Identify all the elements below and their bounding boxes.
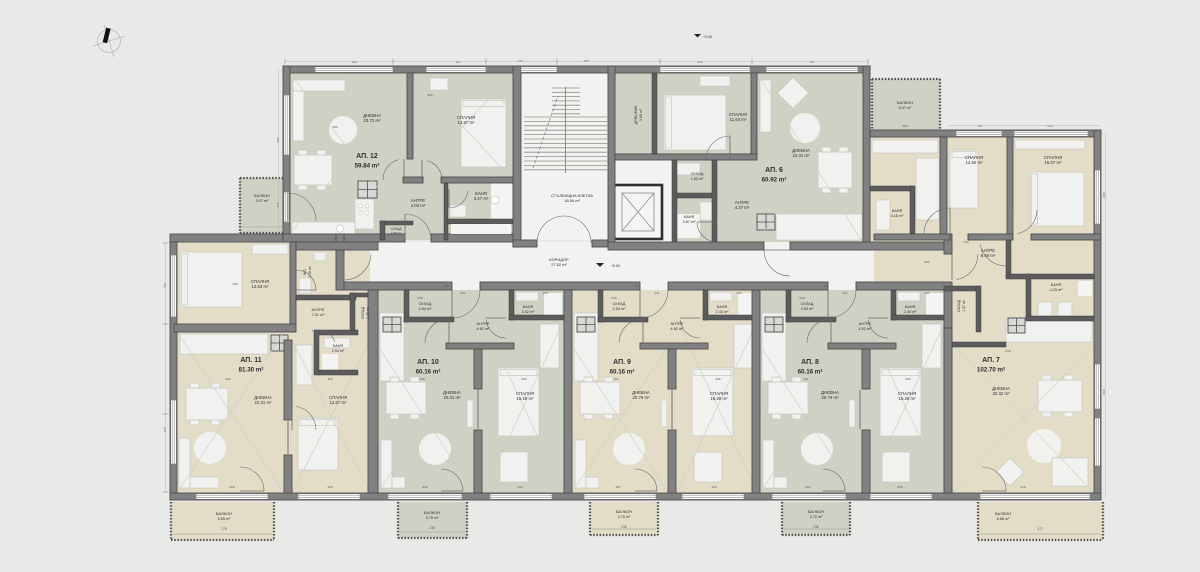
svg-text:231: 231 <box>842 291 847 295</box>
svg-text:2.40 m²: 2.40 m² <box>904 310 918 314</box>
svg-text:БАЛКОН: БАЛКОН <box>424 510 440 515</box>
svg-text:БАНЯ: БАНЯ <box>333 344 343 348</box>
svg-text:163: 163 <box>924 291 929 295</box>
svg-text:3.72 m²: 3.72 m² <box>810 515 824 519</box>
svg-text:БАНЯ: БАНЯ <box>1051 283 1062 287</box>
svg-text:+3.00: +3.00 <box>703 35 712 39</box>
svg-text:59.84 m²: 59.84 m² <box>355 163 380 170</box>
svg-text:387: 387 <box>163 282 167 287</box>
svg-text:0.75 m²: 0.75 m² <box>391 231 402 235</box>
svg-text:040: 040 <box>417 296 422 300</box>
svg-text:АП. 10: АП. 10 <box>417 359 439 366</box>
svg-text:WC: WC <box>303 269 307 275</box>
svg-text:231: 231 <box>823 284 828 288</box>
svg-text:303: 303 <box>517 485 522 489</box>
svg-text:14.60 m²: 14.60 m² <box>966 160 984 165</box>
svg-text:БАЛКОН: БАЛКОН <box>616 509 632 514</box>
svg-text:308: 308 <box>521 377 526 381</box>
svg-text:288: 288 <box>697 60 702 64</box>
svg-text:231: 231 <box>443 284 448 288</box>
svg-text:616: 616 <box>1005 349 1010 353</box>
svg-text:БАЛКОН: БАЛКОН <box>216 511 232 516</box>
svg-text:040: 040 <box>611 296 616 300</box>
svg-text:АП. 11: АП. 11 <box>240 357 261 364</box>
svg-text:616: 616 <box>1020 485 1025 489</box>
svg-text:398: 398 <box>163 427 167 432</box>
svg-text:60.16 m²: 60.16 m² <box>798 369 823 376</box>
svg-text:231: 231 <box>654 291 659 295</box>
svg-text:2.54 m²: 2.54 m² <box>419 307 433 311</box>
svg-text:2.43 m²: 2.43 m² <box>716 310 730 314</box>
svg-text:361: 361 <box>613 377 618 381</box>
svg-text:16.28 m²: 16.28 m² <box>517 396 535 401</box>
svg-text:346: 346 <box>422 485 427 489</box>
svg-text:2.54 m²: 2.54 m² <box>613 307 627 311</box>
svg-text:238: 238 <box>813 525 819 529</box>
svg-text:БАЛКОН: БАЛКОН <box>897 100 913 105</box>
svg-text:СКЛАД: СКЛАД <box>691 172 704 176</box>
svg-text:11.64 m²: 11.64 m² <box>730 117 747 122</box>
svg-text:284: 284 <box>902 124 907 128</box>
svg-text:БАЛКОН: БАЛКОН <box>995 511 1011 516</box>
svg-text:5.55 m²: 5.55 m² <box>218 517 232 521</box>
svg-text:4.37 m²: 4.37 m² <box>735 205 750 210</box>
svg-text:306: 306 <box>715 377 720 381</box>
svg-text:3.80 m²: 3.80 m² <box>639 108 643 121</box>
svg-text:3.07 m²: 3.07 m² <box>256 199 270 203</box>
svg-text:4.62 m²: 4.62 m² <box>670 326 684 331</box>
svg-text:БАНЯ: БАНЯ <box>684 215 695 219</box>
svg-text:480: 480 <box>332 125 337 129</box>
svg-text:238: 238 <box>621 525 627 529</box>
svg-text:390: 390 <box>276 137 280 142</box>
svg-text:130: 130 <box>517 59 522 63</box>
svg-text:АП. 9: АП. 9 <box>613 359 631 366</box>
svg-text:АП. 7: АП. 7 <box>982 357 1000 364</box>
svg-text:13.87 m²: 13.87 m² <box>458 120 476 125</box>
svg-text:4.52 m²: 4.52 m² <box>858 326 872 331</box>
svg-text:18.56 m²: 18.56 m² <box>564 198 580 203</box>
svg-text:243: 243 <box>1047 124 1052 128</box>
svg-text:8.49 m²: 8.49 m² <box>981 253 996 258</box>
svg-text:408: 408 <box>225 377 230 381</box>
svg-text:СКЛАД: СКЛАД <box>419 302 432 306</box>
svg-text:20.76 m²: 20.76 m² <box>822 395 840 400</box>
svg-text:81.30 m²: 81.30 m² <box>239 367 264 374</box>
svg-text:163: 163 <box>736 291 741 295</box>
svg-text:27.52 m²: 27.52 m² <box>551 262 567 267</box>
svg-text:362: 362 <box>455 60 460 64</box>
svg-text:305: 305 <box>327 377 332 381</box>
svg-text:408: 408 <box>229 485 234 489</box>
svg-text:4.03 m²: 4.03 m² <box>411 203 426 208</box>
svg-text:308: 308 <box>905 377 910 381</box>
svg-text:361: 361 <box>805 485 810 489</box>
svg-text:БАНЯ: БАНЯ <box>523 305 534 309</box>
svg-text:303: 303 <box>897 485 902 489</box>
svg-text:20.76 m²: 20.76 m² <box>633 395 651 400</box>
svg-text:АП. 6: АП. 6 <box>765 167 783 174</box>
svg-text:102.70 m²: 102.70 m² <box>977 367 1005 374</box>
svg-text:12.53 m²: 12.53 m² <box>252 284 270 289</box>
svg-text:БАНЯ: БАНЯ <box>905 305 916 309</box>
svg-text:1.62 m²: 1.62 m² <box>691 177 705 181</box>
svg-text:23.72 m²: 23.72 m² <box>364 118 382 123</box>
svg-text:360: 360 <box>924 260 929 264</box>
svg-text:7.51 m²: 7.51 m² <box>311 312 325 317</box>
svg-text:16.28 m²: 16.28 m² <box>899 396 917 401</box>
svg-text:279: 279 <box>221 527 227 531</box>
svg-text:361: 361 <box>803 377 808 381</box>
svg-text:БАЛКОН: БАЛКОН <box>254 193 270 198</box>
svg-text:303: 303 <box>711 485 716 489</box>
svg-text:387: 387 <box>809 60 814 64</box>
svg-text:231: 231 <box>635 284 640 288</box>
svg-text:3.16 m²: 3.16 m² <box>891 214 905 218</box>
svg-text:23.31 m²: 23.31 m² <box>255 400 273 405</box>
svg-text:2.63 m²: 2.63 m² <box>801 307 815 311</box>
svg-text:1.37 m²: 1.37 m² <box>962 299 966 311</box>
svg-text:2.87 m²: 2.87 m² <box>683 220 697 224</box>
svg-text:231: 231 <box>460 291 465 295</box>
svg-text:472: 472 <box>1037 527 1043 531</box>
svg-text:32.32 m²: 32.32 m² <box>993 391 1011 396</box>
svg-text:60.16 m²: 60.16 m² <box>416 369 441 376</box>
svg-text:АП. 12: АП. 12 <box>356 153 378 160</box>
svg-text:040: 040 <box>799 296 804 300</box>
svg-text:163: 163 <box>542 291 547 295</box>
svg-text:БАЛКОН: БАЛКОН <box>808 509 824 514</box>
svg-text:60.16 m²: 60.16 m² <box>610 369 635 376</box>
svg-text:361: 361 <box>615 485 620 489</box>
svg-text:22.31 m²: 22.31 m² <box>793 153 811 158</box>
svg-text:4.25 m²: 4.25 m² <box>1050 288 1064 292</box>
svg-text:16.28 m²: 16.28 m² <box>711 396 729 401</box>
svg-text:3.47 m²: 3.47 m² <box>474 196 489 201</box>
svg-text:СКЛАД: СКЛАД <box>801 302 814 306</box>
svg-text:6.07 m²: 6.07 m² <box>899 106 913 110</box>
svg-text:205: 205 <box>276 202 280 207</box>
svg-text:3.75 m²: 3.75 m² <box>618 515 632 519</box>
svg-text:1.06 m²: 1.06 m² <box>308 265 312 277</box>
svg-text:100: 100 <box>963 240 968 244</box>
svg-text:СКЛАД: СКЛАД <box>361 306 365 319</box>
svg-text:ДРЕШНИК: ДРЕШНИК <box>634 105 638 125</box>
svg-text:3.76 m²: 3.76 m² <box>366 306 370 318</box>
svg-text:СКЛАД: СКЛАД <box>613 302 626 306</box>
svg-text:303: 303 <box>327 485 332 489</box>
svg-text:3.75 m²: 3.75 m² <box>426 516 440 520</box>
svg-text:288: 288 <box>583 59 588 63</box>
svg-text:АП. 8: АП. 8 <box>801 359 819 366</box>
svg-text:6.88 m²: 6.88 m² <box>997 517 1011 521</box>
svg-text:16.07 m²: 16.07 m² <box>1045 160 1063 165</box>
svg-text:+0.00: +0.00 <box>611 264 620 268</box>
svg-text:388: 388 <box>351 60 356 64</box>
svg-text:348: 348 <box>419 377 424 381</box>
svg-text:365: 365 <box>427 93 432 97</box>
svg-text:СКЛАД: СКЛАД <box>957 299 961 312</box>
svg-text:60.92 m²: 60.92 m² <box>762 177 787 184</box>
svg-text:2.94 m²: 2.94 m² <box>332 349 345 353</box>
svg-text:12.67 m²: 12.67 m² <box>330 400 348 405</box>
svg-text:БАНЯ: БАНЯ <box>892 209 903 213</box>
svg-text:4.62 m²: 4.62 m² <box>476 326 490 331</box>
svg-text:238: 238 <box>429 526 435 530</box>
svg-text:БАНЯ: БАНЯ <box>717 305 728 309</box>
svg-text:197: 197 <box>977 124 982 128</box>
svg-text:409: 409 <box>232 282 237 286</box>
svg-text:20.41 m²: 20.41 m² <box>444 395 462 400</box>
svg-text:2.42 m²: 2.42 m² <box>522 310 536 314</box>
